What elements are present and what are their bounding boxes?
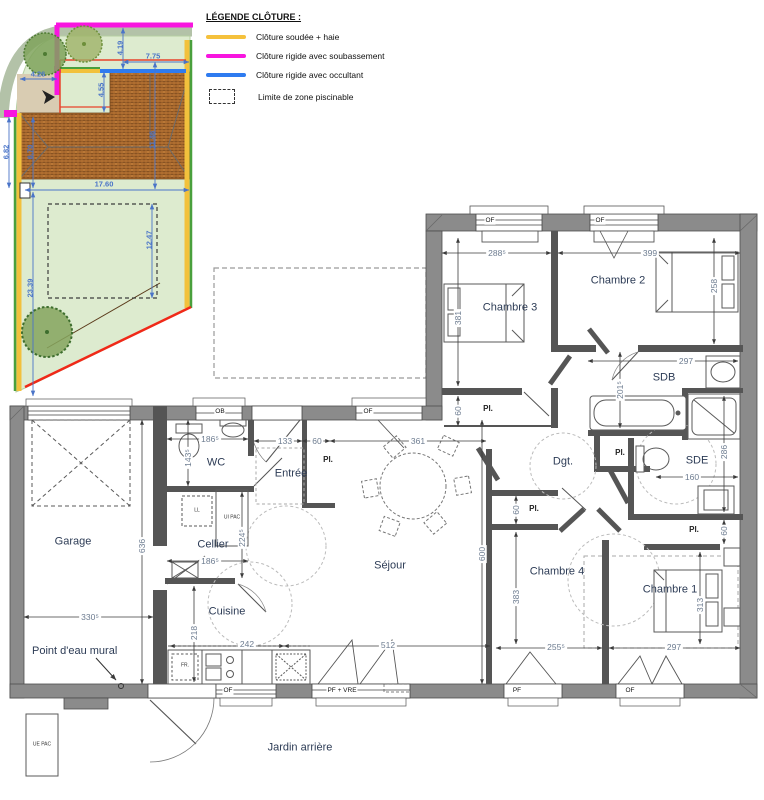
- dim-placard-entree: 60: [310, 437, 323, 446]
- legend-item-piscinable: Limite de zone piscinable: [206, 89, 436, 104]
- room-label-sejour: Séjour: [374, 561, 406, 572]
- dim-placard-ch4: 60: [512, 503, 521, 516]
- dim-cellier-width: 186⁵: [199, 557, 221, 566]
- window-label-of: OF: [222, 688, 233, 695]
- point-eau-label: Point d'eau mural: [32, 644, 120, 658]
- room-label-chambre2: Chambre 2: [591, 276, 645, 287]
- site-dim: 12.47: [145, 231, 153, 250]
- window-label-of: OF: [594, 218, 605, 225]
- site-plan: [3, 25, 193, 396]
- room-label-sde: SDE: [686, 456, 709, 467]
- legend-item-label: Clôture rigide avec soubassement: [256, 51, 385, 61]
- dim-cellier-height: 224⁵: [238, 527, 247, 549]
- dim-garage-height: 636: [138, 537, 147, 555]
- site-dim: 4.19: [116, 41, 124, 56]
- dim-sde-width: 160: [683, 473, 701, 482]
- dim-ch4-width: 255⁵: [545, 643, 567, 652]
- room-label-chambre4: Chambre 4: [530, 567, 584, 578]
- legend-item-soudee: Clôture soudée + haie: [206, 32, 436, 42]
- dim-ch2-width: 399: [641, 249, 659, 258]
- window-label-of: OF: [624, 688, 635, 695]
- fence-blue-swatch: [206, 73, 246, 77]
- placard-label: Pl.: [528, 505, 540, 513]
- dim-wc-width: 186⁵: [199, 435, 221, 444]
- legend: LÉGENDE CLÔTURE : Clôture soudée + haie …: [206, 12, 436, 113]
- site-dim: 4.55: [97, 83, 105, 98]
- legend-item-label: Clôture soudée + haie: [256, 32, 339, 42]
- site-dim: 17.60: [95, 180, 114, 188]
- placard-label: Pl.: [322, 456, 334, 464]
- fence-magenta-swatch: [206, 54, 246, 58]
- dim-entree-width: 133: [276, 437, 294, 446]
- dim-sdb-width: 297: [677, 357, 695, 366]
- window-label-of: OF: [484, 218, 495, 225]
- fridge-label: FR.: [181, 664, 189, 669]
- dim-sejour-top: 361: [409, 437, 427, 446]
- washer-label: LL: [194, 509, 200, 514]
- heatpump-indoor-label: UI PAC: [224, 516, 240, 521]
- room-label-garage: Garage: [55, 537, 92, 548]
- legend-item-label: Limite de zone piscinable: [258, 92, 353, 102]
- dim-sejour-height: 600: [478, 545, 487, 563]
- room-label-wc: WC: [207, 458, 225, 469]
- room-label-dgt: Dgt.: [553, 457, 573, 468]
- dim-ch3-width: 288⁵: [486, 249, 508, 258]
- dim-sejour-width: 512: [379, 641, 397, 650]
- dim-garage-width: 330⁵: [79, 613, 101, 622]
- window-label-ob: OB: [214, 409, 225, 416]
- site-dim: 11.46: [148, 131, 156, 149]
- dim-ch4-height: 383: [512, 588, 521, 606]
- site-dim: 23.39: [26, 279, 34, 298]
- placard-label: Pl.: [614, 449, 626, 457]
- placard-label: Pl.: [688, 526, 700, 534]
- dim-ch1-width: 297: [665, 643, 683, 652]
- room-label-chambre1: Chambre 1: [643, 585, 697, 596]
- room-label-sdb: SDB: [653, 373, 676, 384]
- legend-item-occultant: Clôture rigide avec occultant: [206, 70, 436, 80]
- window-label-pf: PF: [512, 688, 522, 695]
- heatpump-outdoor-label: UE PAC: [33, 743, 51, 748]
- dim-placard-ch1: 60: [720, 524, 729, 537]
- legend-item-label: Clôture rigide avec occultant: [256, 70, 363, 80]
- dim-ch1-height: 313: [696, 596, 705, 614]
- pool-zone-swatch: [209, 89, 235, 104]
- site-dim: 6.82: [2, 145, 10, 160]
- site-dim: 7.75: [146, 52, 161, 60]
- window-label-pf-vre: PF + VRE: [326, 688, 357, 695]
- dim-sdb-height: 201⁵: [616, 379, 625, 401]
- legend-title: LÉGENDE CLÔTURE :: [206, 12, 436, 22]
- room-label-cuisine: Cuisine: [209, 607, 246, 618]
- site-dim: 4.26: [31, 70, 46, 78]
- room-label-chambre3: Chambre 3: [483, 303, 537, 314]
- dim-wc-height: 143⁵: [184, 447, 193, 469]
- window-label-of: OF: [362, 409, 373, 416]
- floor-plan-document: LÉGENDE CLÔTURE : Clôture soudée + haie …: [0, 0, 764, 800]
- garden-label: Jardin arrière: [268, 743, 333, 754]
- dim-cuisine-height: 218: [190, 624, 199, 642]
- dim-placard-nord: 60: [454, 404, 463, 417]
- dim-cuisine-width: 242: [238, 640, 256, 649]
- dim-ch2-height: 258: [710, 277, 719, 295]
- fence-yellow-swatch: [206, 35, 246, 39]
- placard-label: Pl.: [482, 405, 494, 413]
- room-label-cellier: Cellier: [197, 540, 228, 551]
- dim-sde-height: 286: [720, 443, 729, 461]
- legend-item-soubassement: Clôture rigide avec soubassement: [206, 51, 436, 61]
- room-label-entree: Entrée: [275, 469, 307, 480]
- dim-ch3-height: 381: [454, 309, 463, 327]
- plan-drawing: [0, 0, 764, 800]
- site-dim: 6.70: [26, 145, 34, 160]
